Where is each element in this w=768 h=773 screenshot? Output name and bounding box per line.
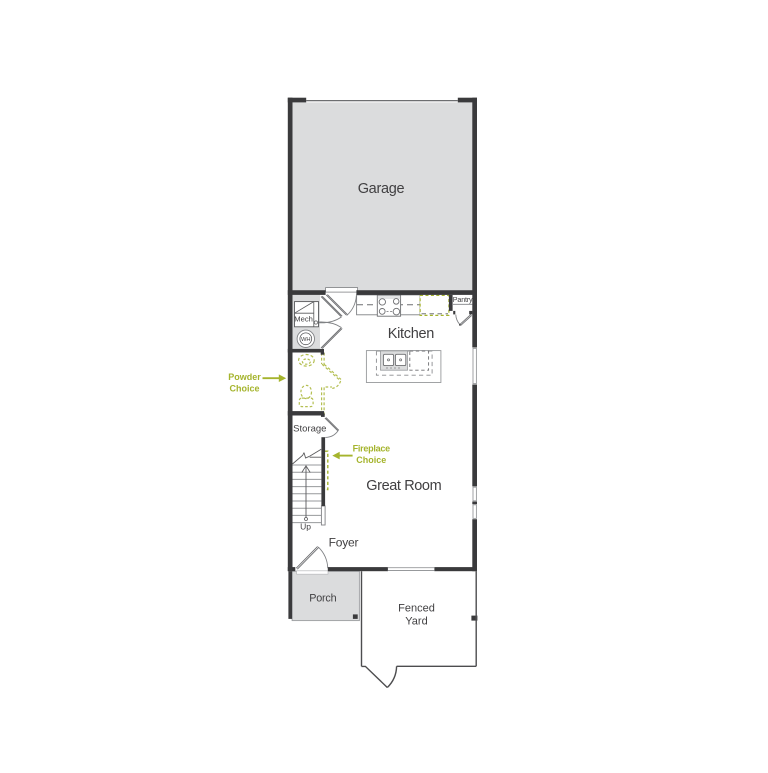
- svg-text:Pantry: Pantry: [453, 295, 473, 304]
- svg-text:Up: Up: [300, 521, 311, 531]
- svg-text:Great Room: Great Room: [366, 478, 441, 494]
- svg-text:Yard: Yard: [405, 616, 427, 628]
- svg-text:Choice: Choice: [229, 383, 259, 393]
- svg-text:Foyer: Foyer: [329, 536, 359, 550]
- svg-text:Fenced: Fenced: [398, 603, 435, 615]
- svg-text:Storage: Storage: [293, 423, 326, 434]
- svg-text:Garage: Garage: [358, 181, 405, 197]
- svg-text:Fireplace: Fireplace: [353, 444, 391, 454]
- svg-text:WH: WH: [301, 337, 311, 343]
- svg-text:Choice: Choice: [356, 455, 386, 465]
- svg-text:Kitchen: Kitchen: [388, 326, 434, 342]
- svg-text:Mech: Mech: [294, 314, 313, 323]
- svg-text:Powder: Powder: [228, 372, 261, 382]
- svg-text:Porch: Porch: [309, 592, 336, 604]
